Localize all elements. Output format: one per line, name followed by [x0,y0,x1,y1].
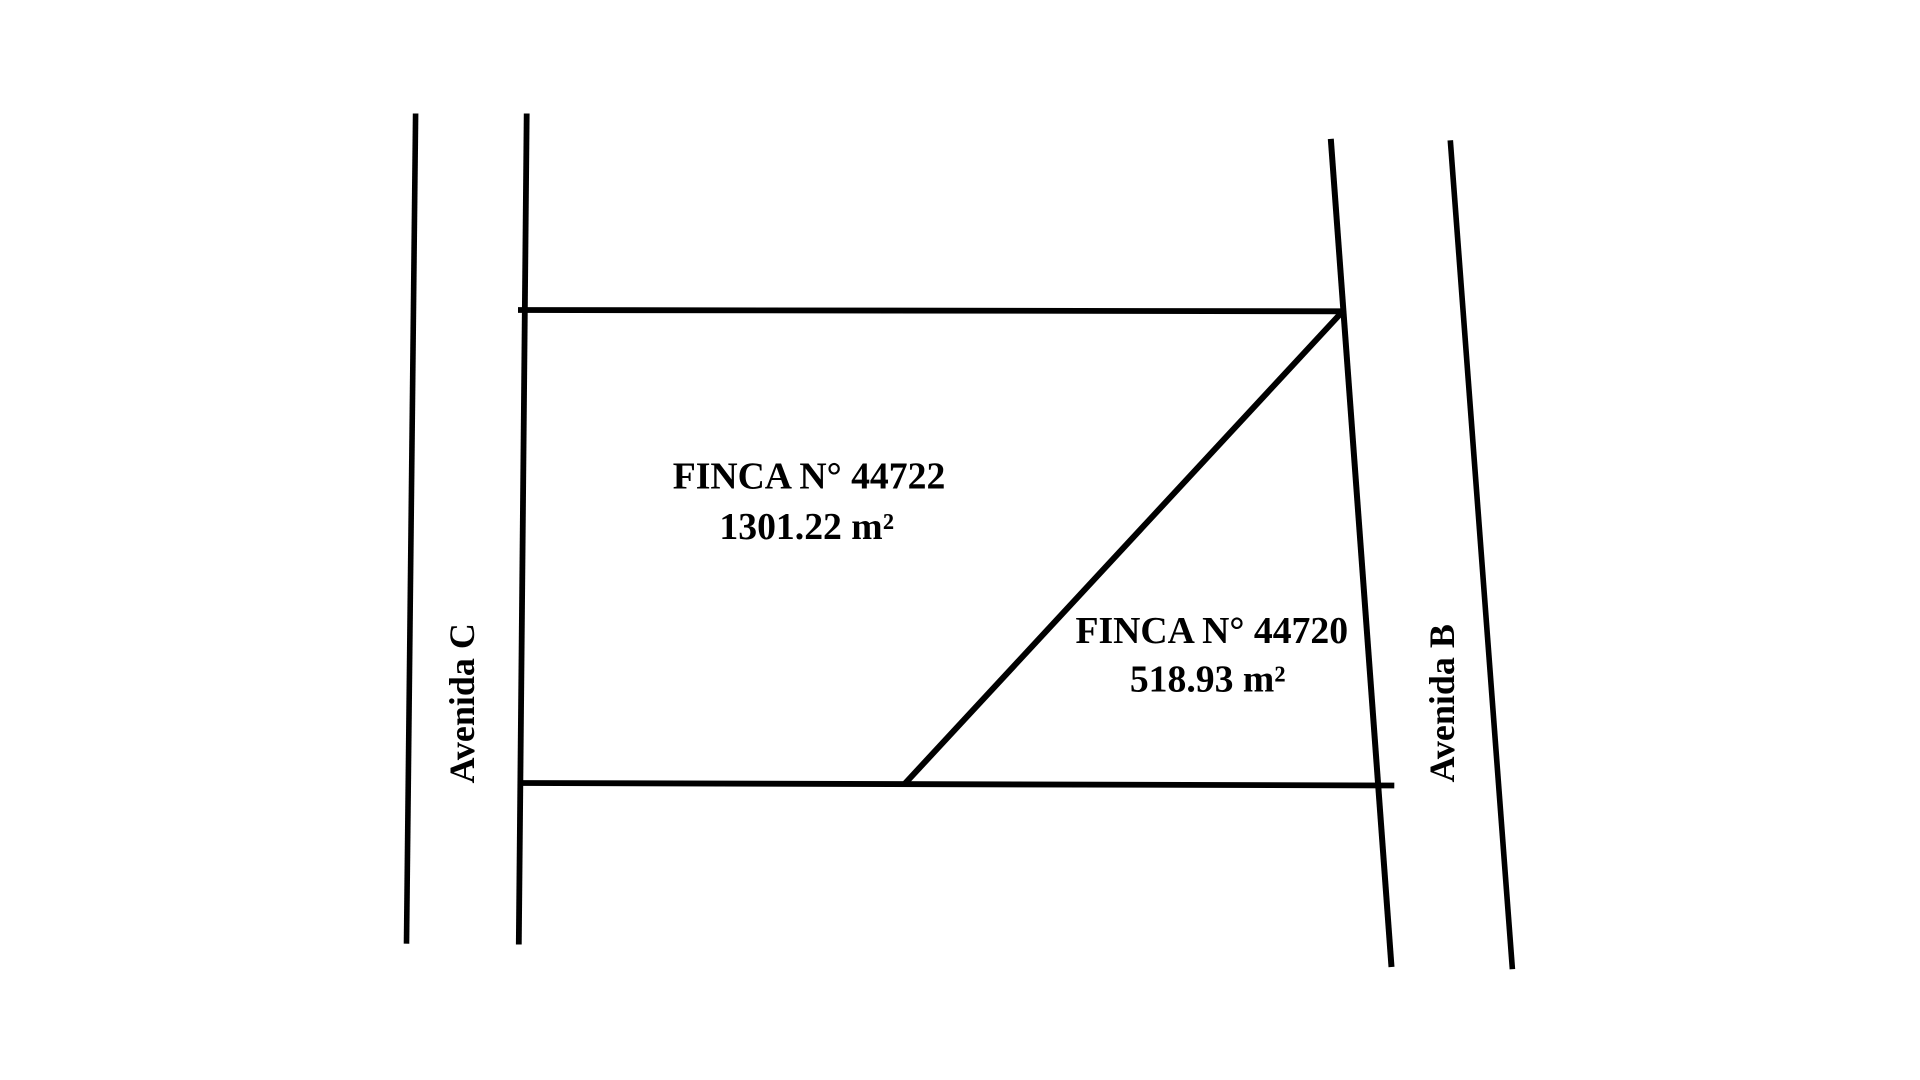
svg-text:518.93 m²: 518.93 m² [1130,659,1286,701]
svg-text:1301.22 m²: 1301.22 m² [719,506,894,548]
svg-text:FINCA N° 44722: FINCA N° 44722 [673,455,946,497]
svg-text:Avenida C: Avenida C [442,623,482,783]
svg-text:FINCA N° 44720: FINCA N° 44720 [1075,610,1348,652]
svg-text:Avenida B: Avenida B [1422,624,1462,782]
